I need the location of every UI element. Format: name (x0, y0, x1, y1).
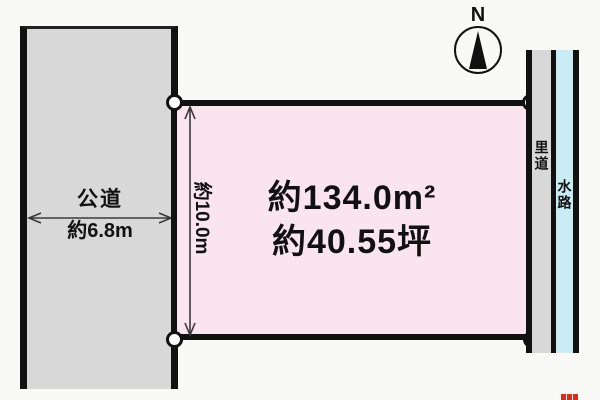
land-parcel: 約134.0m² 約40.55坪 (171, 100, 533, 340)
public-road-name: 公道 (50, 188, 150, 212)
corner-marker-bottom-left (166, 331, 183, 348)
waterway-strip: 水路 (556, 50, 573, 353)
parcel-depth-label: 約10.0m (189, 159, 213, 277)
rido-label: 里道 (532, 140, 552, 172)
compass-icon (454, 26, 502, 74)
strip-border-line (573, 50, 579, 353)
land-plot-diagram: 公道 約6.8m 約134.0m² 約40.55坪 約10.0m N 里道 水路 (0, 0, 600, 400)
parcel-area-tsubo: 約40.55坪 (272, 220, 432, 264)
compass-north-label: N (462, 4, 494, 27)
public-road-width-label: 約6.8m (46, 220, 154, 242)
rido-strip: 里道 (532, 50, 551, 353)
right-side-strips: 里道 水路 (526, 50, 579, 353)
waterway-label: 水路 (555, 179, 575, 211)
corner-marker-top-left (166, 94, 183, 111)
parcel-area-sqm: 約134.0m² (268, 176, 437, 220)
compass-needle-icon (456, 28, 500, 72)
watermark-fragment (561, 394, 583, 400)
